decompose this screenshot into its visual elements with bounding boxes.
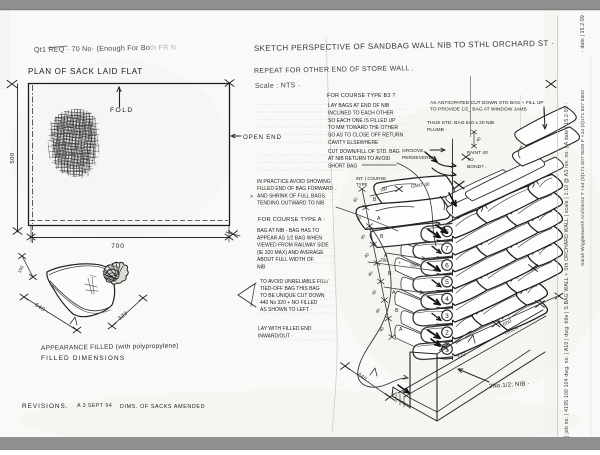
svg-text:2: 2 [445, 330, 449, 337]
svg-text:FILLED DIMENSIONS: FILLED DIMENSIONS [41, 355, 125, 362]
svg-text:SHORT BAG: SHORT BAG [328, 163, 357, 169]
svg-text:BOND? .: BOND? . [467, 164, 487, 170]
svg-text:SO EACH ONE IS FILLED UP: SO EACH ONE IS FILLED UP [328, 118, 396, 124]
svg-text:A 3 SEPT 94: A 3 SEPT 94 [77, 403, 112, 409]
svg-text:VIEWED FROM RAILWAY SIDE: VIEWED FROM RAILWAY SIDE [257, 243, 329, 249]
svg-text:PAINT 40: PAINT 40 [467, 150, 488, 156]
svg-text:NIB: NIB [257, 265, 266, 271]
svg-text:Scale : NTS ·: Scale : NTS · [255, 82, 301, 90]
svg-text:500: 500 [10, 152, 16, 163]
svg-text:} job no. | 4195 100 104 dwg: } job no. | 4195 100 104 dwg. no. | A10 … [564, 102, 570, 437]
svg-text:FILLED END OF BAG FORWARD .: FILLED END OF BAG FORWARD . [257, 186, 336, 192]
svg-text:PLUMB ·: PLUMB · [427, 127, 447, 133]
svg-text:TENDING OUTWARD TO NIB: TENDING OUTWARD TO NIB [257, 201, 325, 207]
svg-text:IN PRACTICE AVOID SHOWING: IN PRACTICE AVOID SHOWING [257, 179, 331, 185]
svg-text:B: B [373, 197, 377, 203]
svg-text:(IE 320 MAX) AND AVERAGE: (IE 320 MAX) AND AVERAGE [257, 250, 324, 256]
svg-text:LAY BAGS AT END OF NIB: LAY BAGS AT END OF NIB [328, 103, 390, 109]
svg-text:INT. | COURSE: INT. | COURSE [356, 176, 386, 181]
svg-text:BAG AT NIB - BAG HAS TO: BAG AT NIB - BAG HAS TO [257, 228, 319, 234]
svg-text:Sarah Wigglesworth Architects: Sarah Wigglesworth Architects T +44 (0)1… [580, 90, 586, 266]
svg-text:THUS STD. BAG 640 x 20 NIB: THUS STD. BAG 640 x 20 NIB [427, 120, 494, 126]
svg-text:CUT DOWN/FILL OF STD. BAG: CUT DOWN/FILL OF STD. BAG [328, 149, 400, 155]
svg-text:A: A [392, 290, 396, 296]
svg-text:AND SHRINK OF FULL BAGS.: AND SHRINK OF FULL BAGS. [257, 193, 326, 199]
svg-text:SO AS TO CLOSE OFF RETURN: SO AS TO CLOSE OFF RETURN [328, 133, 403, 139]
svg-text:440 No 320 + NO FILLED: 440 No 320 + NO FILLED [260, 300, 318, 306]
svg-text:DIMS. OF SACKS AMENDED: DIMS. OF SACKS AMENDED [120, 404, 205, 410]
svg-text:AS ANTICIPATED CUT DOWN STD BA: AS ANTICIPATED CUT DOWN STD BAG + FILL U… [430, 100, 544, 106]
svg-text:AT NIB RETURN TO AVOID: AT NIB RETURN TO AVOID [328, 156, 391, 162]
svg-text:6: 6 [445, 262, 449, 269]
svg-text:TYPE: TYPE [356, 182, 368, 187]
svg-text:PERSEVERES: PERSEVERES [402, 155, 436, 161]
svg-text:TIED-OFF BAG THIS BAG: TIED-OFF BAG THIS BAG [260, 286, 320, 292]
svg-text:GROOVE: GROOVE [402, 148, 424, 154]
svg-text:B: B [395, 308, 399, 314]
svg-text:CAVITY ELSEWHERE: CAVITY ELSEWHERE [328, 140, 379, 146]
svg-text:PLAN OF SACK LAID FLAT: PLAN OF SACK LAID FLAT [28, 67, 143, 76]
svg-text:INCLINED TO EACH OTHER: INCLINED TO EACH OTHER [328, 110, 394, 116]
svg-text:B: B [380, 234, 384, 240]
svg-text:5: 5 [445, 279, 449, 286]
svg-text:3: 3 [445, 313, 449, 320]
svg-text:TO BE UNIQUE CUT DOWN: TO BE UNIQUE CUT DOWN [260, 293, 325, 299]
svg-text:7: 7 [445, 246, 449, 253]
svg-text:A: A [399, 327, 403, 333]
svg-text:TO MM TOWARD THE OTHER: TO MM TOWARD THE OTHER [328, 125, 398, 131]
svg-text:LAY WITH FILLED END: LAY WITH FILLED END [258, 326, 312, 332]
svg-text:INWARD/OUT ·: INWARD/OUT · [258, 333, 293, 339]
svg-text:>: > [250, 194, 253, 200]
svg-text:REVISIONS.: REVISIONS. [22, 403, 69, 410]
svg-text:FOLD: FOLD [110, 107, 134, 114]
svg-text:A: A [377, 216, 381, 222]
svg-text:700: 700 [111, 243, 124, 250]
svg-text:TO PROVIDE 1/2_ BAG AT WINDOW: TO PROVIDE 1/2_ BAG AT WINDOW JAMB [430, 107, 527, 113]
svg-text:AS SHOWN TO LEFT ·: AS SHOWN TO LEFT · [260, 307, 312, 313]
svg-text:ABOUT FULL WIDTH OF: ABOUT FULL WIDTH OF [257, 257, 314, 263]
svg-text:4: 4 [445, 296, 449, 303]
svg-text:OPEN END: OPEN END [243, 134, 282, 141]
svg-text:FOR COURSE TYPE B3 ?: FOR COURSE TYPE B3 ? [327, 93, 395, 99]
svg-text:TO AVOID UNRELIABLE FILL/: TO AVOID UNRELIABLE FILL/ [260, 279, 329, 285]
svg-text:FOR COURSE TYPE A :: FOR COURSE TYPE A : [258, 217, 325, 223]
svg-text:APPEAR AS 1/2 BAG WHEN: APPEAR AS 1/2 BAG WHEN [257, 235, 322, 241]
svg-text:· date | 15.2-99 ·: · date | 15.2-99 · [580, 11, 586, 52]
